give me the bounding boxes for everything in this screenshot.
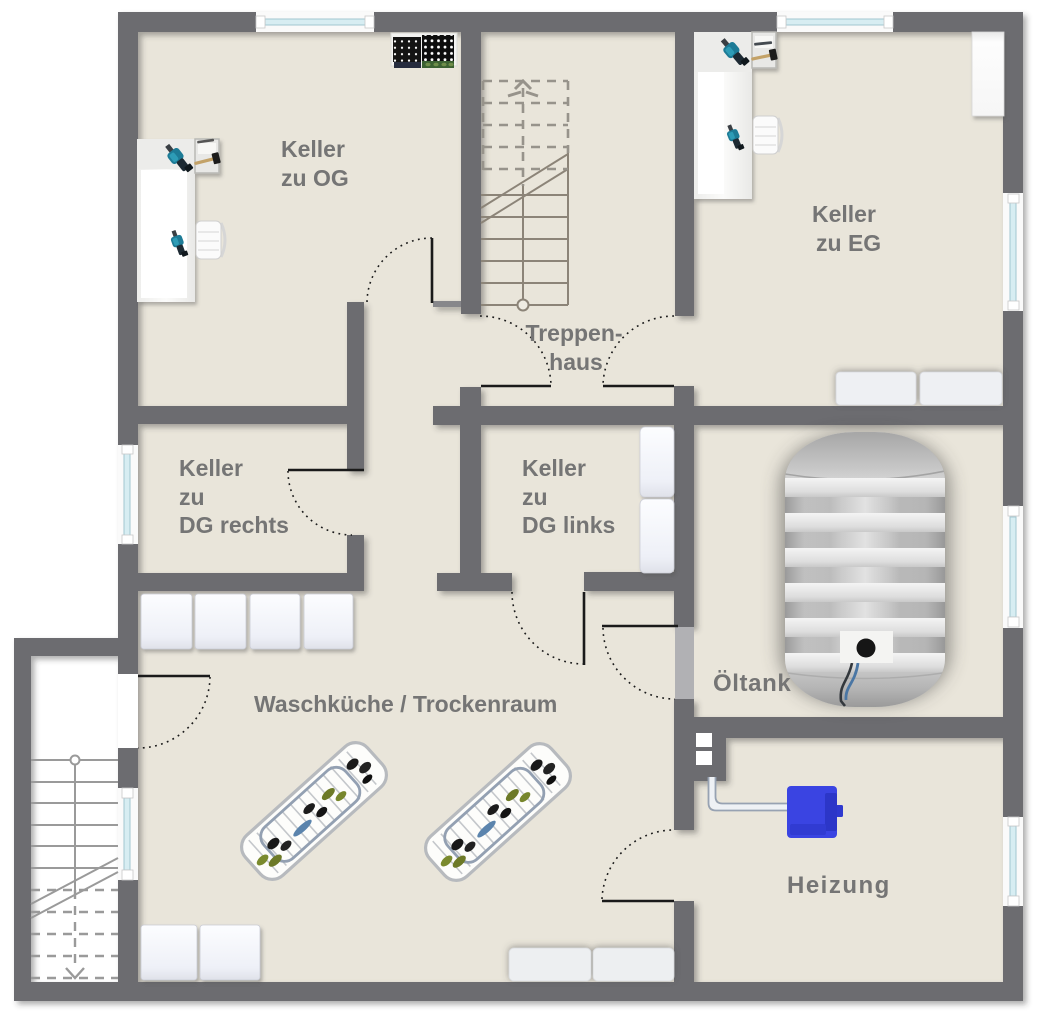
- svg-text:zu: zu: [179, 484, 205, 510]
- svg-text:Keller: Keller: [812, 201, 876, 227]
- svg-text:haus: haus: [549, 349, 603, 375]
- svg-text:zu: zu: [522, 484, 548, 510]
- svg-text:zu EG: zu EG: [816, 230, 881, 256]
- svg-text:Öltank: Öltank: [713, 670, 791, 697]
- svg-text:Keller: Keller: [522, 455, 586, 481]
- svg-text:Waschküche / Trockenraum: Waschküche / Trockenraum: [254, 691, 557, 717]
- svg-text:DG rechts: DG rechts: [179, 512, 289, 538]
- svg-text:zu OG: zu OG: [281, 165, 349, 191]
- svg-text:Keller: Keller: [179, 455, 243, 481]
- svg-text:Treppen-: Treppen-: [525, 320, 622, 346]
- svg-text:Heizung: Heizung: [787, 872, 891, 899]
- svg-text:Keller: Keller: [281, 136, 345, 162]
- svg-text:DG links: DG links: [522, 512, 615, 538]
